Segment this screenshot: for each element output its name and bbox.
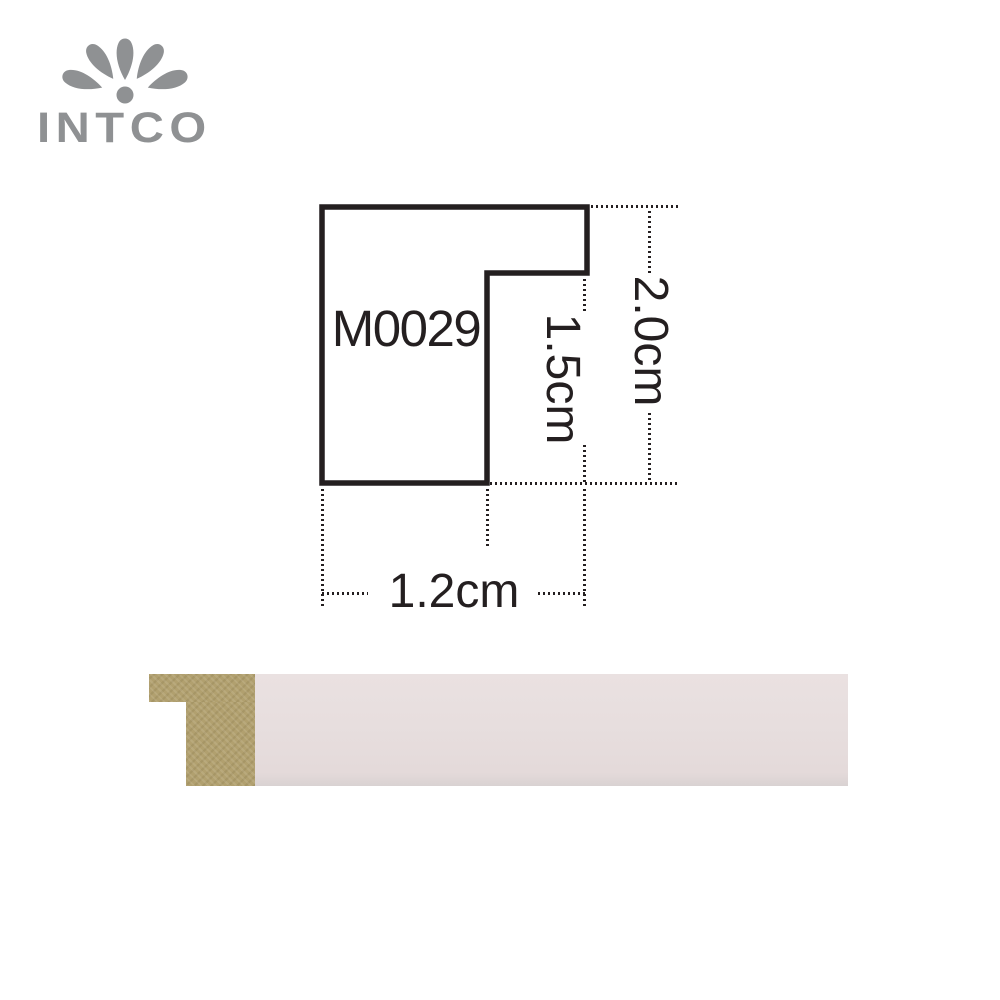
model-code-label: M0029: [322, 303, 490, 355]
product-spec-image: INTCO M0029 2.0cm 1.5cm 1.2cm: [0, 0, 1000, 1000]
total-height-dim-label: 2.0cm: [628, 266, 672, 416]
extension-line-top: [591, 205, 679, 208]
height-dim-line-lower: [648, 413, 651, 483]
width-extension-line-middle: [486, 489, 489, 546]
moulding-surface-strip: [255, 674, 848, 786]
flower-dot: [117, 87, 134, 104]
height-dim-line-upper: [648, 211, 651, 273]
width-dim-line-left: [322, 592, 368, 595]
moulding-core-cross-section: [186, 702, 255, 786]
moulding-sample-photo: [149, 674, 848, 786]
moulding-core-top-lip: [149, 674, 255, 702]
brand-name: INTCO: [37, 104, 212, 153]
width-dim-line-right: [538, 592, 585, 595]
width-dim-label: 1.2cm: [372, 570, 536, 614]
rabbet-height-dim-label: 1.5cm: [540, 304, 584, 454]
width-extension-line-left: [321, 489, 324, 607]
width-extension-line-right: [583, 489, 586, 607]
